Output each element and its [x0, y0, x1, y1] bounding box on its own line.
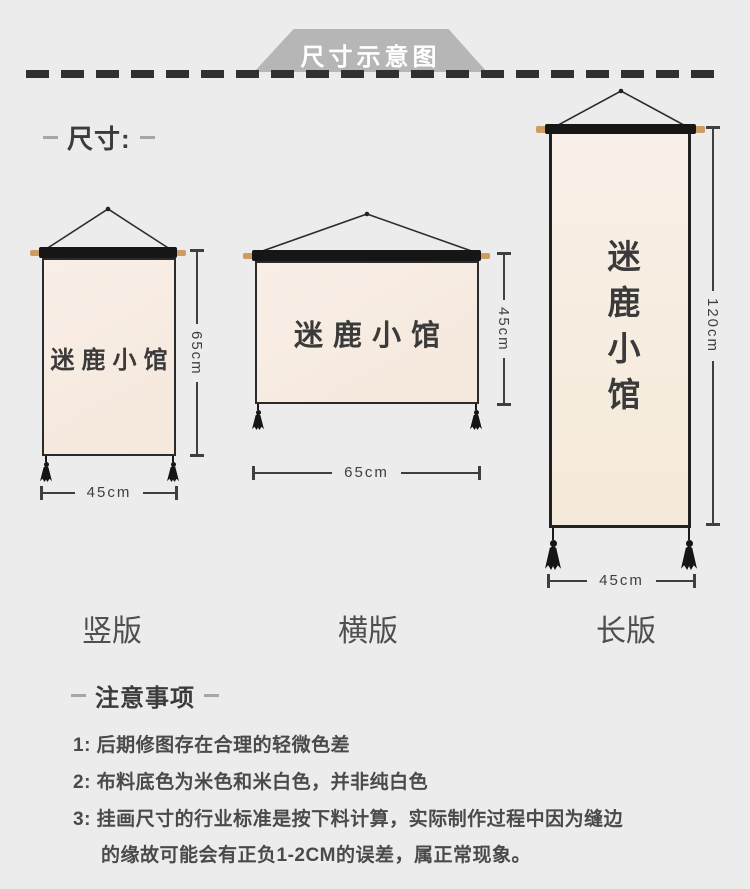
height-dimension-landscape: 45cm	[496, 252, 511, 406]
tassel	[40, 456, 52, 482]
height-dimension-label: 45cm	[495, 307, 512, 352]
height-dimension-label: 120cm	[704, 298, 721, 353]
size-diagram-page: 尺寸示意图 尺寸: 迷鹿小馆 65cm 45cm 竖版	[0, 0, 750, 889]
brand-text-vertical: 迷鹿小馆	[549, 134, 691, 528]
heading-dash-left	[71, 694, 86, 697]
tassel	[470, 404, 482, 430]
wood-cap	[176, 250, 186, 256]
tassel	[545, 528, 561, 570]
title-banner: 尺寸示意图	[254, 29, 487, 72]
page-title: 尺寸示意图	[301, 30, 441, 72]
hanging-rod	[252, 250, 481, 261]
heading-dash-left	[43, 136, 58, 139]
heading-dash-right	[204, 694, 219, 697]
height-dimension-label: 65cm	[188, 331, 205, 376]
note-item-3-line-1: 3: 挂画尺寸的行业标准是按下料计算，实际制作过程中因为缝边	[73, 804, 623, 831]
width-dimension-label: 45cm	[87, 484, 132, 501]
tassel	[681, 528, 697, 570]
wood-cap	[695, 126, 705, 133]
brand-text: 迷鹿小馆	[42, 258, 176, 456]
heading-dash-right	[140, 136, 155, 139]
dashed-divider	[26, 70, 724, 78]
note-item-3-line-2: 的缘故可能会有正负1-2CM的误差，属正常现象。	[101, 840, 531, 867]
scroll-type-label-long: 长版	[556, 606, 696, 650]
width-dimension-label: 65cm	[344, 464, 389, 481]
hanging-rod	[545, 124, 696, 134]
width-dimension-long: 45cm	[547, 573, 696, 588]
notes-section-label: 注意事项	[95, 678, 195, 713]
size-section-heading: 尺寸:	[43, 119, 155, 156]
width-dimension-label: 45cm	[599, 572, 644, 589]
tassel	[252, 404, 264, 430]
width-dimension-portrait: 45cm	[40, 485, 178, 500]
height-dimension-long: 120cm	[705, 126, 720, 526]
hanging-rod	[39, 247, 177, 258]
size-section-label: 尺寸:	[67, 119, 131, 156]
note-item-1: 1: 后期修图存在合理的轻微色差	[73, 730, 350, 757]
width-dimension-landscape: 65cm	[252, 465, 481, 480]
brand-text: 迷鹿小馆	[255, 261, 479, 404]
tassel	[167, 456, 179, 482]
scroll-type-label-landscape: 横版	[298, 606, 438, 650]
notes-section-heading: 注意事项	[71, 678, 219, 713]
wood-cap	[480, 253, 490, 259]
height-dimension-portrait: 65cm	[189, 249, 204, 457]
scroll-type-label-portrait: 竖版	[42, 606, 182, 650]
note-item-2: 2: 布料底色为米色和米白色，并非纯白色	[73, 767, 428, 794]
